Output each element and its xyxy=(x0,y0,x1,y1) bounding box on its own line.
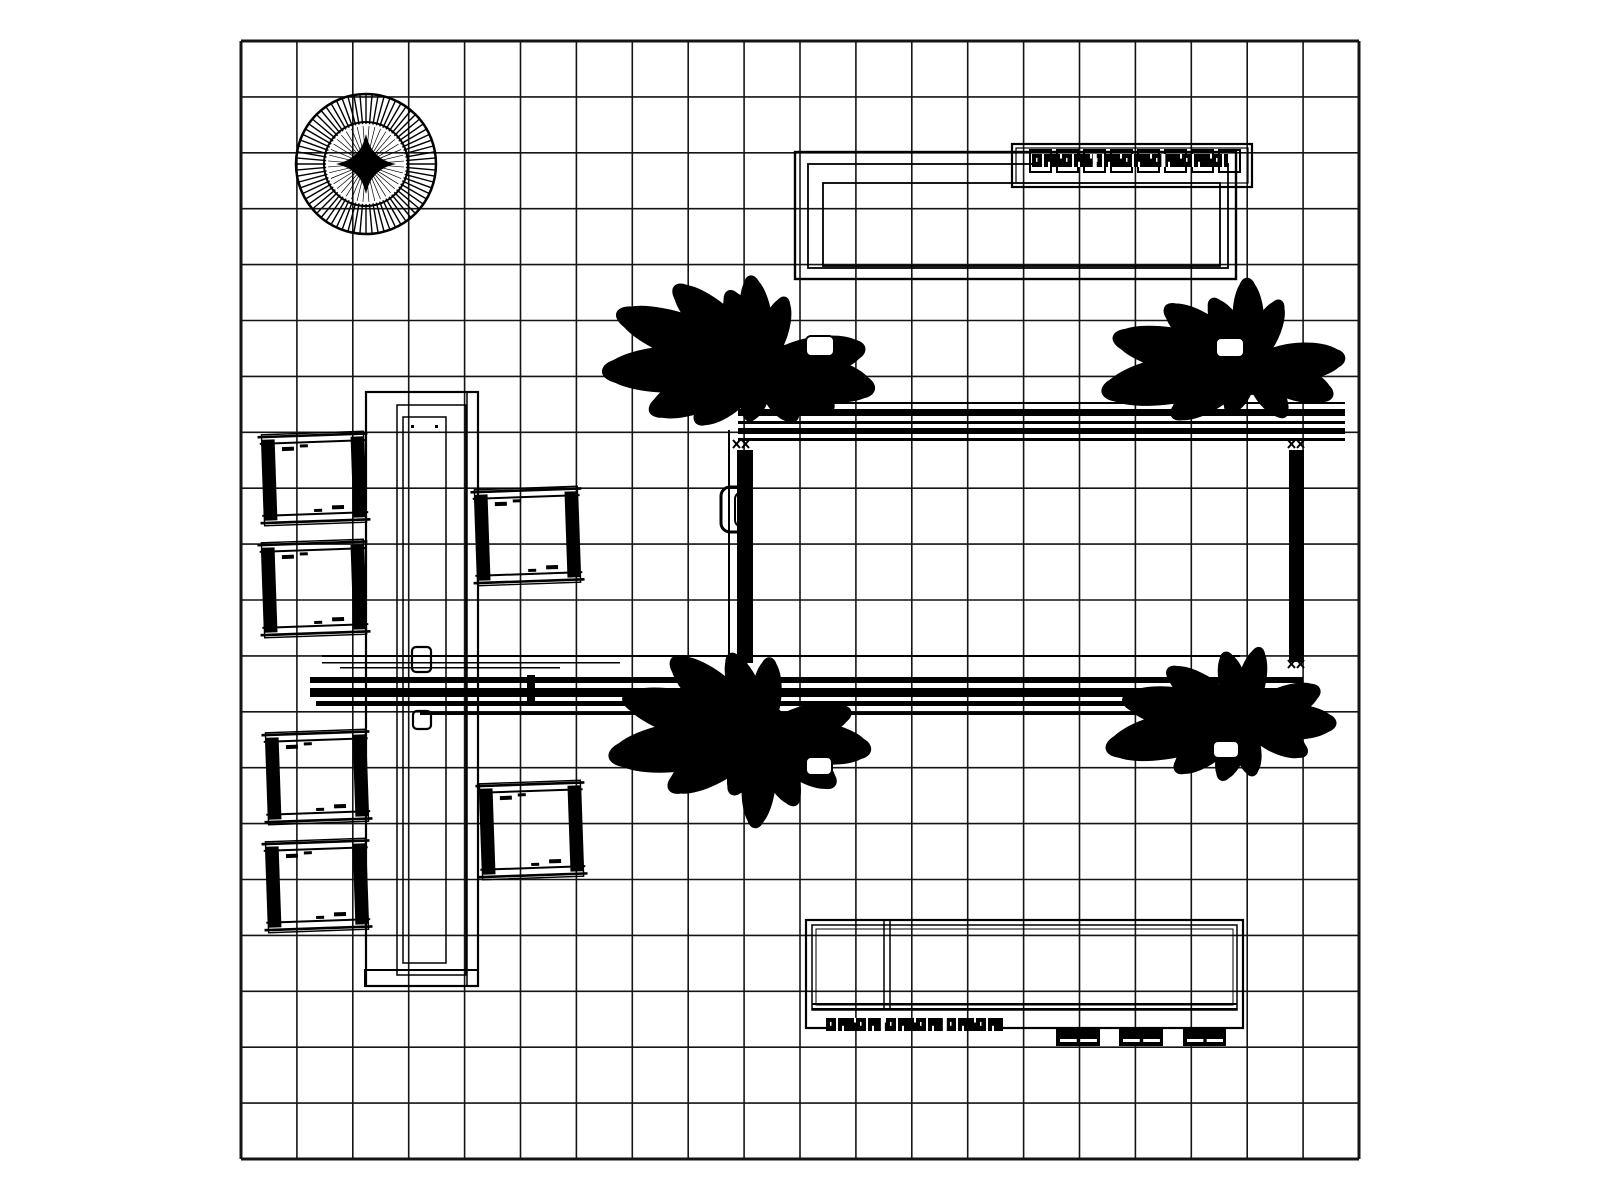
chair xyxy=(261,729,372,825)
reception-counter xyxy=(806,920,1243,1046)
frame-connector-tl xyxy=(733,440,749,448)
literature-shelf xyxy=(1012,144,1252,187)
planter-pot xyxy=(806,757,832,775)
frame-post-right xyxy=(1289,450,1304,662)
round-plant-symbol xyxy=(296,94,436,234)
planter-pot xyxy=(1216,338,1244,357)
booth-grid xyxy=(241,41,1359,1159)
rail-tick xyxy=(527,675,535,701)
chair xyxy=(470,486,584,586)
chair xyxy=(257,539,370,638)
palm-plant xyxy=(605,642,874,830)
chair xyxy=(475,780,587,880)
chair xyxy=(257,431,370,526)
chair xyxy=(261,838,372,933)
frame-connector-tr xyxy=(1288,440,1304,448)
planter-pot xyxy=(1213,741,1239,758)
floor-plan-drawing xyxy=(0,0,1600,1200)
frame-post-left xyxy=(729,430,753,672)
floor-plan-canvas xyxy=(0,0,1600,1200)
planter-pot xyxy=(806,336,834,356)
